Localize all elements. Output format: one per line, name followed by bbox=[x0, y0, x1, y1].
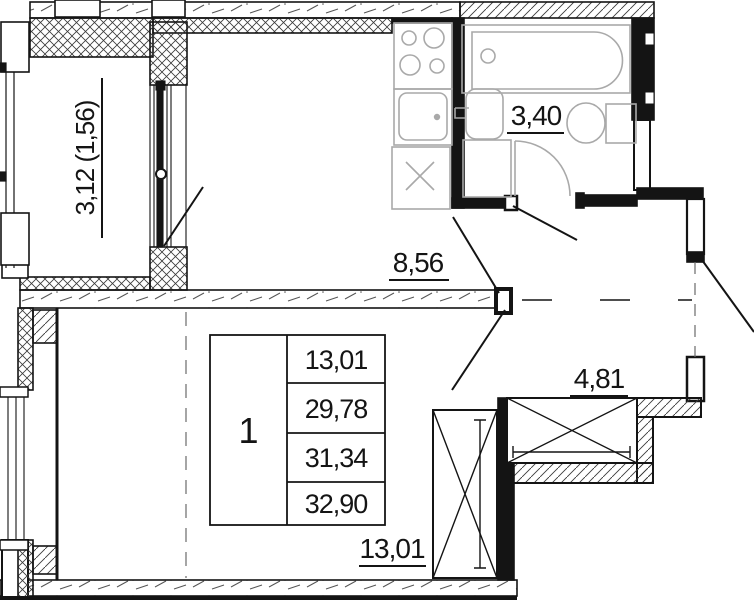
burner bbox=[424, 28, 444, 48]
hall-wall-top-right bbox=[637, 398, 701, 417]
svg-text:3,12 (1,56): 3,12 (1,56) bbox=[70, 100, 100, 215]
balcony-divider-bottom bbox=[150, 247, 187, 290]
left-wall-upper-block bbox=[33, 310, 57, 343]
bath-right-wall-notch-2 bbox=[645, 92, 654, 104]
top-wall-notch-1 bbox=[55, 0, 100, 17]
unit-number: 1 bbox=[238, 410, 257, 451]
bathroom-door bbox=[515, 141, 570, 196]
balcony-door-glazing bbox=[157, 85, 163, 247]
bottom-wall-outer bbox=[0, 596, 517, 600]
balcony-divider-top bbox=[150, 22, 187, 85]
washing-machine bbox=[463, 140, 511, 197]
right-wall-upper bbox=[687, 199, 704, 254]
right-wall-pier bbox=[687, 357, 704, 401]
faucet-dot bbox=[435, 115, 440, 120]
left-wall-corner-block bbox=[33, 546, 57, 574]
wardrobes bbox=[433, 398, 637, 578]
burner bbox=[402, 31, 416, 45]
bath-bottom-wall-cap bbox=[576, 193, 584, 208]
bath-door-pointer bbox=[513, 206, 577, 240]
area-table: 1 13,01 29,78 31,34 32,90 bbox=[210, 335, 385, 525]
svg-text:4,81: 4,81 bbox=[574, 363, 625, 394]
balcony-door-swing bbox=[164, 187, 203, 246]
wardrobe-vertical bbox=[433, 410, 497, 578]
table-row-value: 32,90 bbox=[305, 489, 368, 519]
balcony-window-left bbox=[0, 22, 29, 268]
left-wall-upper-band bbox=[18, 308, 33, 390]
opening-pointer-lower bbox=[452, 310, 505, 390]
balcony-label: 3,12 (1,56) bbox=[70, 78, 102, 238]
top-wall-notch-2 bbox=[152, 0, 185, 17]
hallway-label: 4,81 bbox=[570, 363, 628, 396]
svg-text:3,40: 3,40 bbox=[511, 100, 562, 131]
svg-text:13,01: 13,01 bbox=[359, 533, 424, 564]
bottom-wall bbox=[0, 580, 517, 596]
opening-pointer-upper bbox=[453, 217, 499, 293]
mid-wall-insulation bbox=[20, 277, 150, 290]
balcony-top-wall bbox=[30, 18, 153, 57]
bathtub bbox=[462, 25, 630, 93]
appliance-slot bbox=[392, 147, 450, 209]
floor-plan-drawing: 1 13,01 29,78 31,34 32,90 3,12 (1,56) 3,… bbox=[0, 0, 754, 600]
bath-right-wall-notch-1 bbox=[645, 33, 654, 45]
toilet bbox=[567, 103, 636, 143]
burner bbox=[430, 59, 444, 73]
right-step-wall bbox=[637, 188, 703, 199]
table-row-value: 31,34 bbox=[305, 443, 369, 473]
door-swing-arc bbox=[515, 141, 570, 196]
bathroom-label: 3,40 bbox=[507, 100, 564, 133]
kitchen-sink bbox=[394, 89, 452, 145]
kitchen-label: 8,56 bbox=[389, 247, 449, 280]
room-window bbox=[0, 387, 28, 550]
stove bbox=[394, 23, 452, 89]
toilet-bowl bbox=[567, 103, 605, 143]
burner bbox=[400, 55, 420, 75]
balcony-door-handle bbox=[156, 169, 166, 179]
table-row-value: 13,01 bbox=[305, 345, 368, 375]
wardrobe-horizontal bbox=[507, 398, 637, 463]
bath-bottom-wall-left bbox=[452, 198, 508, 208]
table-row-value: 29,78 bbox=[305, 394, 368, 424]
svg-text:8,56: 8,56 bbox=[393, 247, 444, 278]
kitchen-top-wall bbox=[153, 18, 392, 33]
corner-pointer bbox=[702, 260, 754, 332]
bath-bottom-wall-right bbox=[578, 195, 637, 206]
floor-plan: 1 13,01 29,78 31,34 32,90 3,12 (1,56) 3,… bbox=[0, 0, 754, 600]
hall-wall-bottom bbox=[498, 463, 653, 483]
mid-wall bbox=[20, 290, 498, 308]
top-wall-right bbox=[460, 2, 654, 18]
kitchen-fixtures bbox=[392, 23, 452, 209]
bathtub-drain bbox=[481, 49, 495, 63]
room-label: 13,01 bbox=[359, 533, 426, 566]
